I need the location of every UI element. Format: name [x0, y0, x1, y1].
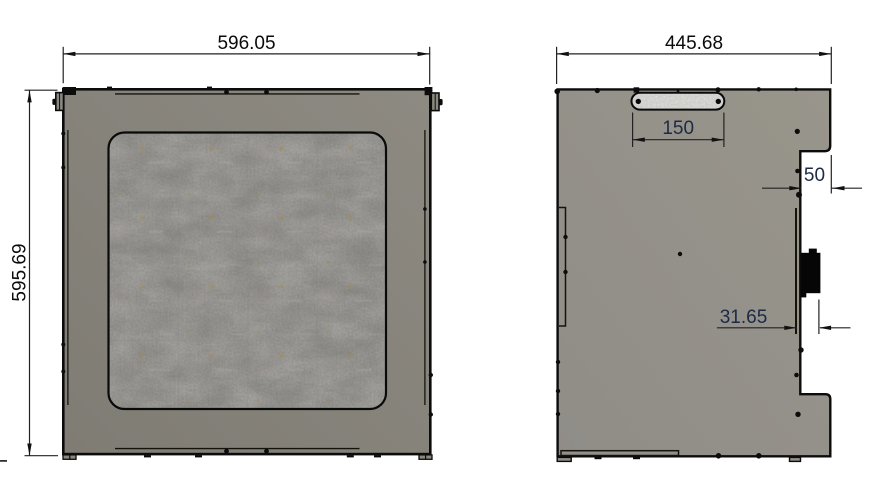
svg-text:595.69: 595.69: [9, 243, 30, 301]
svg-text:596.05: 596.05: [217, 33, 275, 54]
svg-text:445.68: 445.68: [665, 33, 723, 54]
svg-text:50: 50: [804, 165, 825, 186]
svg-text:31.65: 31.65: [720, 307, 768, 328]
svg-text:150: 150: [662, 118, 694, 139]
